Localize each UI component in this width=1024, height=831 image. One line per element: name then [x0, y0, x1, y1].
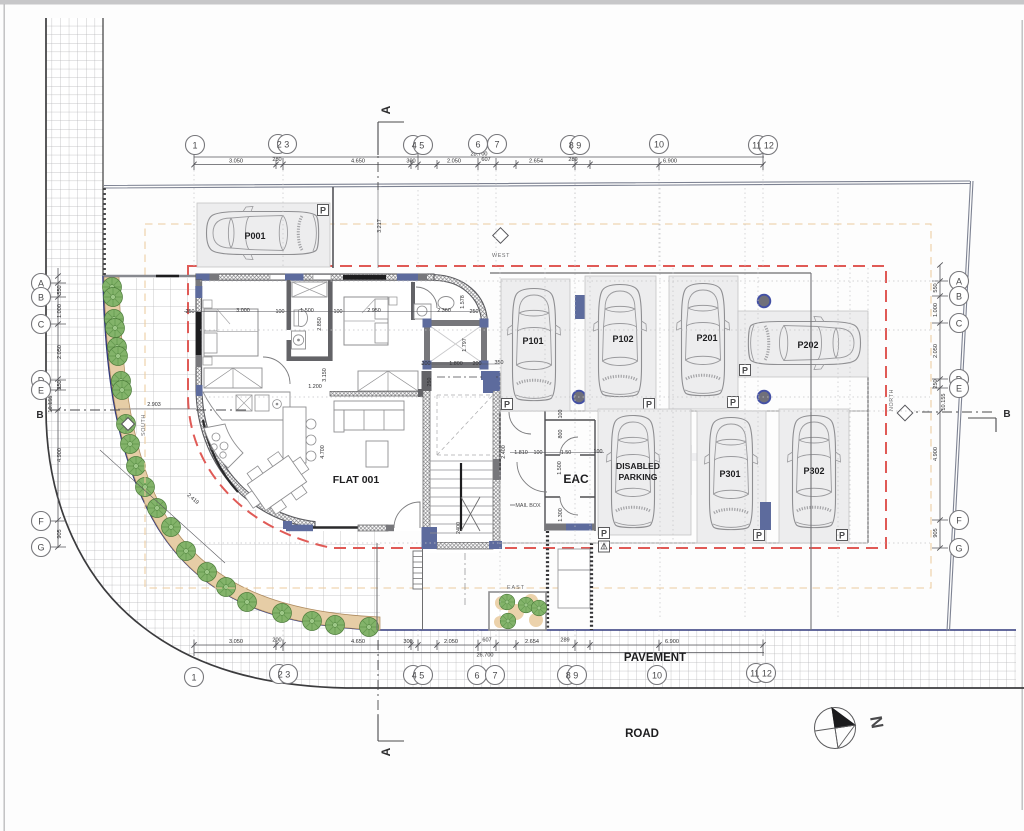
svg-text:6.900: 6.900: [663, 159, 677, 165]
svg-text:2.654: 2.654: [529, 159, 543, 165]
svg-text:EAST: EAST: [507, 585, 525, 591]
svg-text:2.654: 2.654: [525, 639, 539, 645]
svg-text:11 12: 11 12: [752, 140, 774, 150]
svg-text:607: 607: [481, 157, 490, 163]
svg-text:4.700: 4.700: [320, 445, 326, 459]
svg-text:100: 100: [534, 450, 543, 456]
svg-text:3.150: 3.150: [322, 368, 328, 382]
svg-text:1.200: 1.200: [308, 384, 322, 390]
svg-text:1.500: 1.500: [557, 461, 563, 475]
svg-text:905: 905: [933, 528, 939, 537]
svg-text:B: B: [956, 291, 962, 301]
svg-text:PAVEMENT: PAVEMENT: [624, 652, 686, 664]
svg-text:B: B: [38, 292, 44, 302]
svg-text:8 9: 8 9: [566, 670, 579, 680]
svg-text:3.000: 3.000: [236, 308, 250, 314]
svg-text:250: 250: [933, 379, 939, 388]
svg-text:SOUTH: SOUTH: [141, 414, 147, 436]
svg-text:EAC: EAC: [563, 472, 589, 486]
svg-text:200: 200: [272, 638, 281, 644]
svg-text:4.900: 4.900: [57, 448, 63, 462]
svg-text:1.797: 1.797: [462, 338, 468, 352]
svg-text:1.810: 1.810: [514, 450, 528, 456]
svg-text:4.650: 4.650: [351, 159, 365, 165]
svg-text:F: F: [38, 516, 44, 526]
svg-text:2 3: 2 3: [277, 139, 290, 149]
svg-text:289: 289: [568, 157, 577, 163]
svg-text:C: C: [956, 318, 963, 328]
svg-text:100: 100: [334, 309, 343, 315]
svg-text:G: G: [37, 542, 44, 552]
svg-text:2.050: 2.050: [447, 159, 461, 165]
svg-text:P001: P001: [244, 231, 265, 241]
svg-text:3.050: 3.050: [229, 639, 243, 645]
svg-text:B: B: [36, 410, 43, 421]
svg-text:NORTH: NORTH: [889, 389, 895, 411]
svg-text:100: 100: [276, 309, 285, 315]
svg-text:8 9: 8 9: [569, 140, 582, 150]
svg-text:1.000: 1.000: [57, 304, 63, 318]
svg-text:1.500: 1.500: [300, 308, 314, 314]
svg-text:FLAT 001: FLAT 001: [333, 474, 380, 486]
svg-text:10: 10: [654, 139, 664, 149]
svg-text:550: 550: [933, 283, 939, 292]
svg-text:905: 905: [57, 529, 63, 538]
svg-text:4.900: 4.900: [933, 447, 939, 461]
svg-text:A: A: [38, 278, 44, 288]
svg-text:P302: P302: [803, 466, 824, 476]
svg-text:1.300: 1.300: [558, 508, 564, 522]
svg-text:2.400: 2.400: [501, 445, 507, 459]
svg-text:289: 289: [560, 638, 569, 644]
svg-text:607: 607: [482, 638, 491, 644]
svg-text:A: A: [956, 276, 962, 286]
svg-text:250: 250: [186, 309, 195, 315]
svg-text:3.050: 3.050: [229, 159, 243, 165]
svg-text:WEST: WEST: [492, 253, 510, 259]
svg-text:6: 6: [475, 139, 480, 149]
svg-text:PARKING: PARKING: [619, 472, 658, 482]
svg-text:100: 100: [594, 449, 603, 455]
svg-text:E: E: [38, 385, 44, 395]
svg-text:2.850: 2.850: [317, 317, 323, 331]
svg-text:F: F: [956, 515, 962, 525]
svg-text:2.050: 2.050: [444, 639, 458, 645]
svg-text:P101: P101: [522, 336, 543, 346]
svg-text:300: 300: [406, 159, 415, 165]
svg-text:2.360: 2.360: [437, 308, 451, 314]
svg-text:10.155: 10.155: [941, 393, 947, 410]
svg-text:G: G: [955, 543, 962, 553]
svg-text:250: 250: [57, 380, 63, 389]
svg-text:4 5: 4 5: [412, 670, 425, 680]
svg-text:C: C: [38, 319, 45, 329]
svg-text:7: 7: [492, 670, 497, 680]
svg-text:10: 10: [652, 670, 662, 680]
svg-text:P201: P201: [696, 333, 717, 343]
svg-text:300: 300: [403, 639, 412, 645]
svg-text:ROAD: ROAD: [625, 728, 659, 740]
svg-text:B: B: [1003, 409, 1010, 420]
svg-text:P202: P202: [797, 340, 818, 350]
svg-text:A: A: [379, 747, 393, 756]
svg-text:4.650: 4.650: [351, 639, 365, 645]
svg-text:2.050: 2.050: [933, 344, 939, 358]
svg-text:1: 1: [192, 140, 197, 150]
svg-text:2400: 2400: [456, 522, 462, 534]
svg-text:6.900: 6.900: [665, 639, 679, 645]
svg-text:MAIL BOX: MAIL BOX: [515, 503, 541, 509]
svg-text:250: 250: [470, 309, 479, 315]
svg-text:2.050: 2.050: [57, 345, 63, 359]
svg-text:2 3: 2 3: [278, 669, 291, 679]
svg-text:2.950: 2.950: [367, 308, 381, 314]
svg-text:E: E: [956, 383, 962, 393]
svg-text:11 12: 11 12: [750, 668, 772, 678]
svg-text:DISABLED: DISABLED: [616, 461, 660, 471]
svg-text:1.578: 1.578: [460, 295, 466, 309]
svg-text:26.700: 26.700: [476, 653, 493, 659]
svg-text:1.000: 1.000: [933, 303, 939, 317]
svg-text:A: A: [379, 105, 393, 114]
svg-text:1.50: 1.50: [561, 450, 572, 456]
svg-text:800: 800: [558, 430, 564, 439]
svg-text:P301: P301: [719, 469, 740, 479]
svg-text:550: 550: [57, 285, 63, 294]
svg-text:2.903: 2.903: [147, 402, 161, 408]
svg-text:1: 1: [191, 672, 196, 682]
svg-text:7: 7: [494, 139, 499, 149]
svg-text:4 5: 4 5: [412, 140, 425, 150]
svg-text:250: 250: [427, 378, 433, 387]
svg-text:P102: P102: [612, 334, 633, 344]
svg-text:350: 350: [495, 360, 504, 366]
svg-text:6: 6: [474, 670, 479, 680]
svg-text:280: 280: [272, 157, 281, 163]
